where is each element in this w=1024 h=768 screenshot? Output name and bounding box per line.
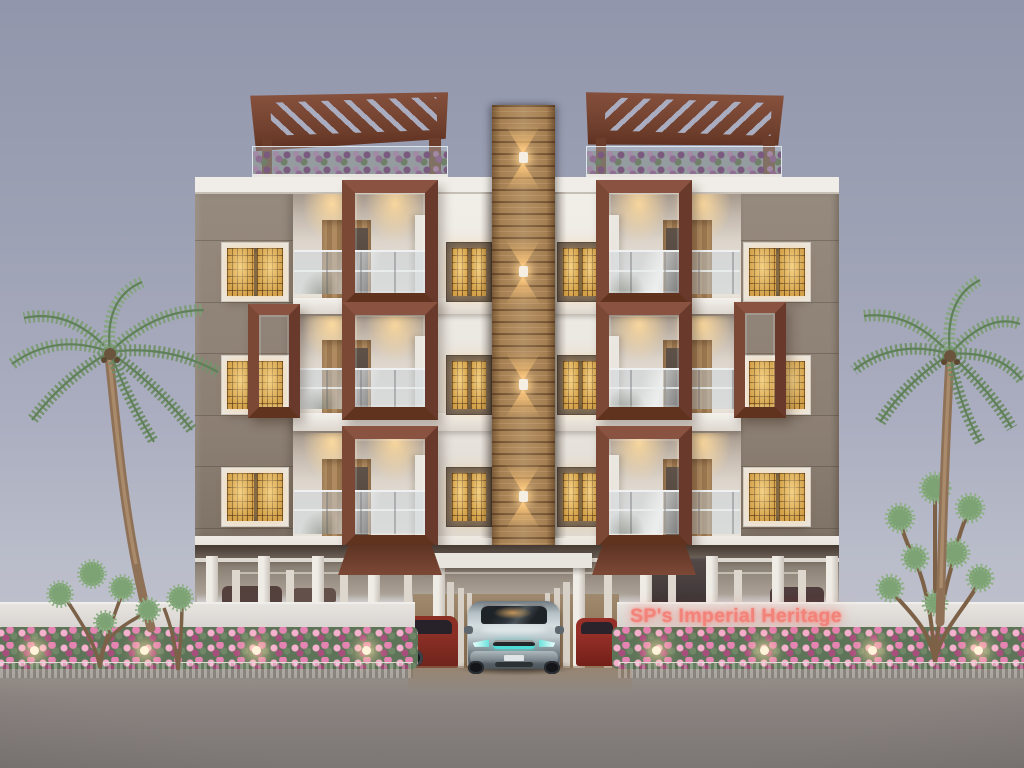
lattice-pane (227, 473, 254, 521)
lattice-pane (582, 473, 598, 521)
railing-foliage-reflection (300, 271, 342, 294)
palm-tree-right (840, 258, 1024, 666)
pergola-slats (604, 98, 771, 136)
entry-canopy (426, 553, 592, 568)
balcony-portal-frame (596, 426, 692, 548)
suv-car (466, 596, 562, 672)
lattice-pane (452, 248, 468, 296)
suv-hood-shine (481, 626, 546, 634)
suv-mirror (555, 626, 564, 634)
lattice-pane (227, 248, 254, 296)
hedge-uplight (252, 646, 261, 655)
shrub-trees-left (30, 536, 215, 672)
hedge-uplight (362, 646, 371, 655)
project-sign: SP's Imperial Heritage (622, 603, 850, 629)
lattice-pane (452, 473, 468, 521)
suv-intake (495, 662, 533, 667)
hedge-uplight (652, 646, 661, 655)
balcony-portal-frame (342, 302, 438, 420)
pergola-slats (270, 97, 437, 135)
lattice-pane (257, 473, 284, 521)
lattice-window (222, 468, 288, 526)
lattice-pane (257, 248, 284, 296)
suv-mirror (464, 626, 473, 634)
wall-groove (741, 528, 839, 529)
balcony-portal-frame (596, 180, 692, 306)
lattice-window (744, 468, 810, 526)
palm-fronds (854, 280, 1022, 442)
pergola-roof (584, 88, 784, 153)
terrace-plants (253, 151, 447, 178)
sconce-fixture (519, 379, 528, 390)
shrub-tree-right (879, 475, 991, 662)
wall-groove (195, 240, 293, 241)
balcony-portal-frame (342, 180, 438, 306)
sconce-fixture (519, 491, 528, 502)
hedge-uplight (760, 646, 769, 655)
suv-plate (504, 655, 523, 661)
pergola-roof (250, 88, 450, 153)
parking-column (458, 588, 464, 668)
central-wall-shade (480, 192, 492, 538)
central-wall-shade (555, 192, 567, 538)
suv-windshield (481, 604, 546, 625)
lattice-pane (779, 473, 806, 521)
parking-column (563, 582, 570, 670)
railing-foliage-reflection (300, 511, 342, 534)
sconce-fixture (519, 266, 528, 277)
lattice-window (744, 243, 810, 301)
suv-grille (493, 640, 535, 649)
portal-bracket (734, 302, 786, 418)
balcony-portal-frame (342, 426, 438, 548)
lattice-pane (749, 473, 776, 521)
lattice-window (222, 243, 288, 301)
lattice-pane (582, 361, 598, 409)
suv-wheel (468, 661, 484, 675)
wall-groove (741, 240, 839, 241)
sconce-fixture (519, 152, 528, 163)
balcony-underside (592, 545, 696, 575)
balcony-underside (338, 545, 442, 575)
lattice-pane (582, 248, 598, 296)
wall-groove (741, 466, 839, 467)
balcony-portal-frame (596, 302, 692, 420)
portal-bracket (248, 304, 300, 418)
suv-wheel (544, 661, 560, 675)
lattice-pane (749, 248, 776, 296)
lattice-pane (779, 248, 806, 296)
lattice-pane (452, 361, 468, 409)
railing-foliage-reflection (300, 388, 342, 409)
architectural-render: SP's Imperial Heritage (0, 0, 1024, 768)
terrace-plants (587, 151, 781, 178)
distant-car (222, 586, 282, 603)
